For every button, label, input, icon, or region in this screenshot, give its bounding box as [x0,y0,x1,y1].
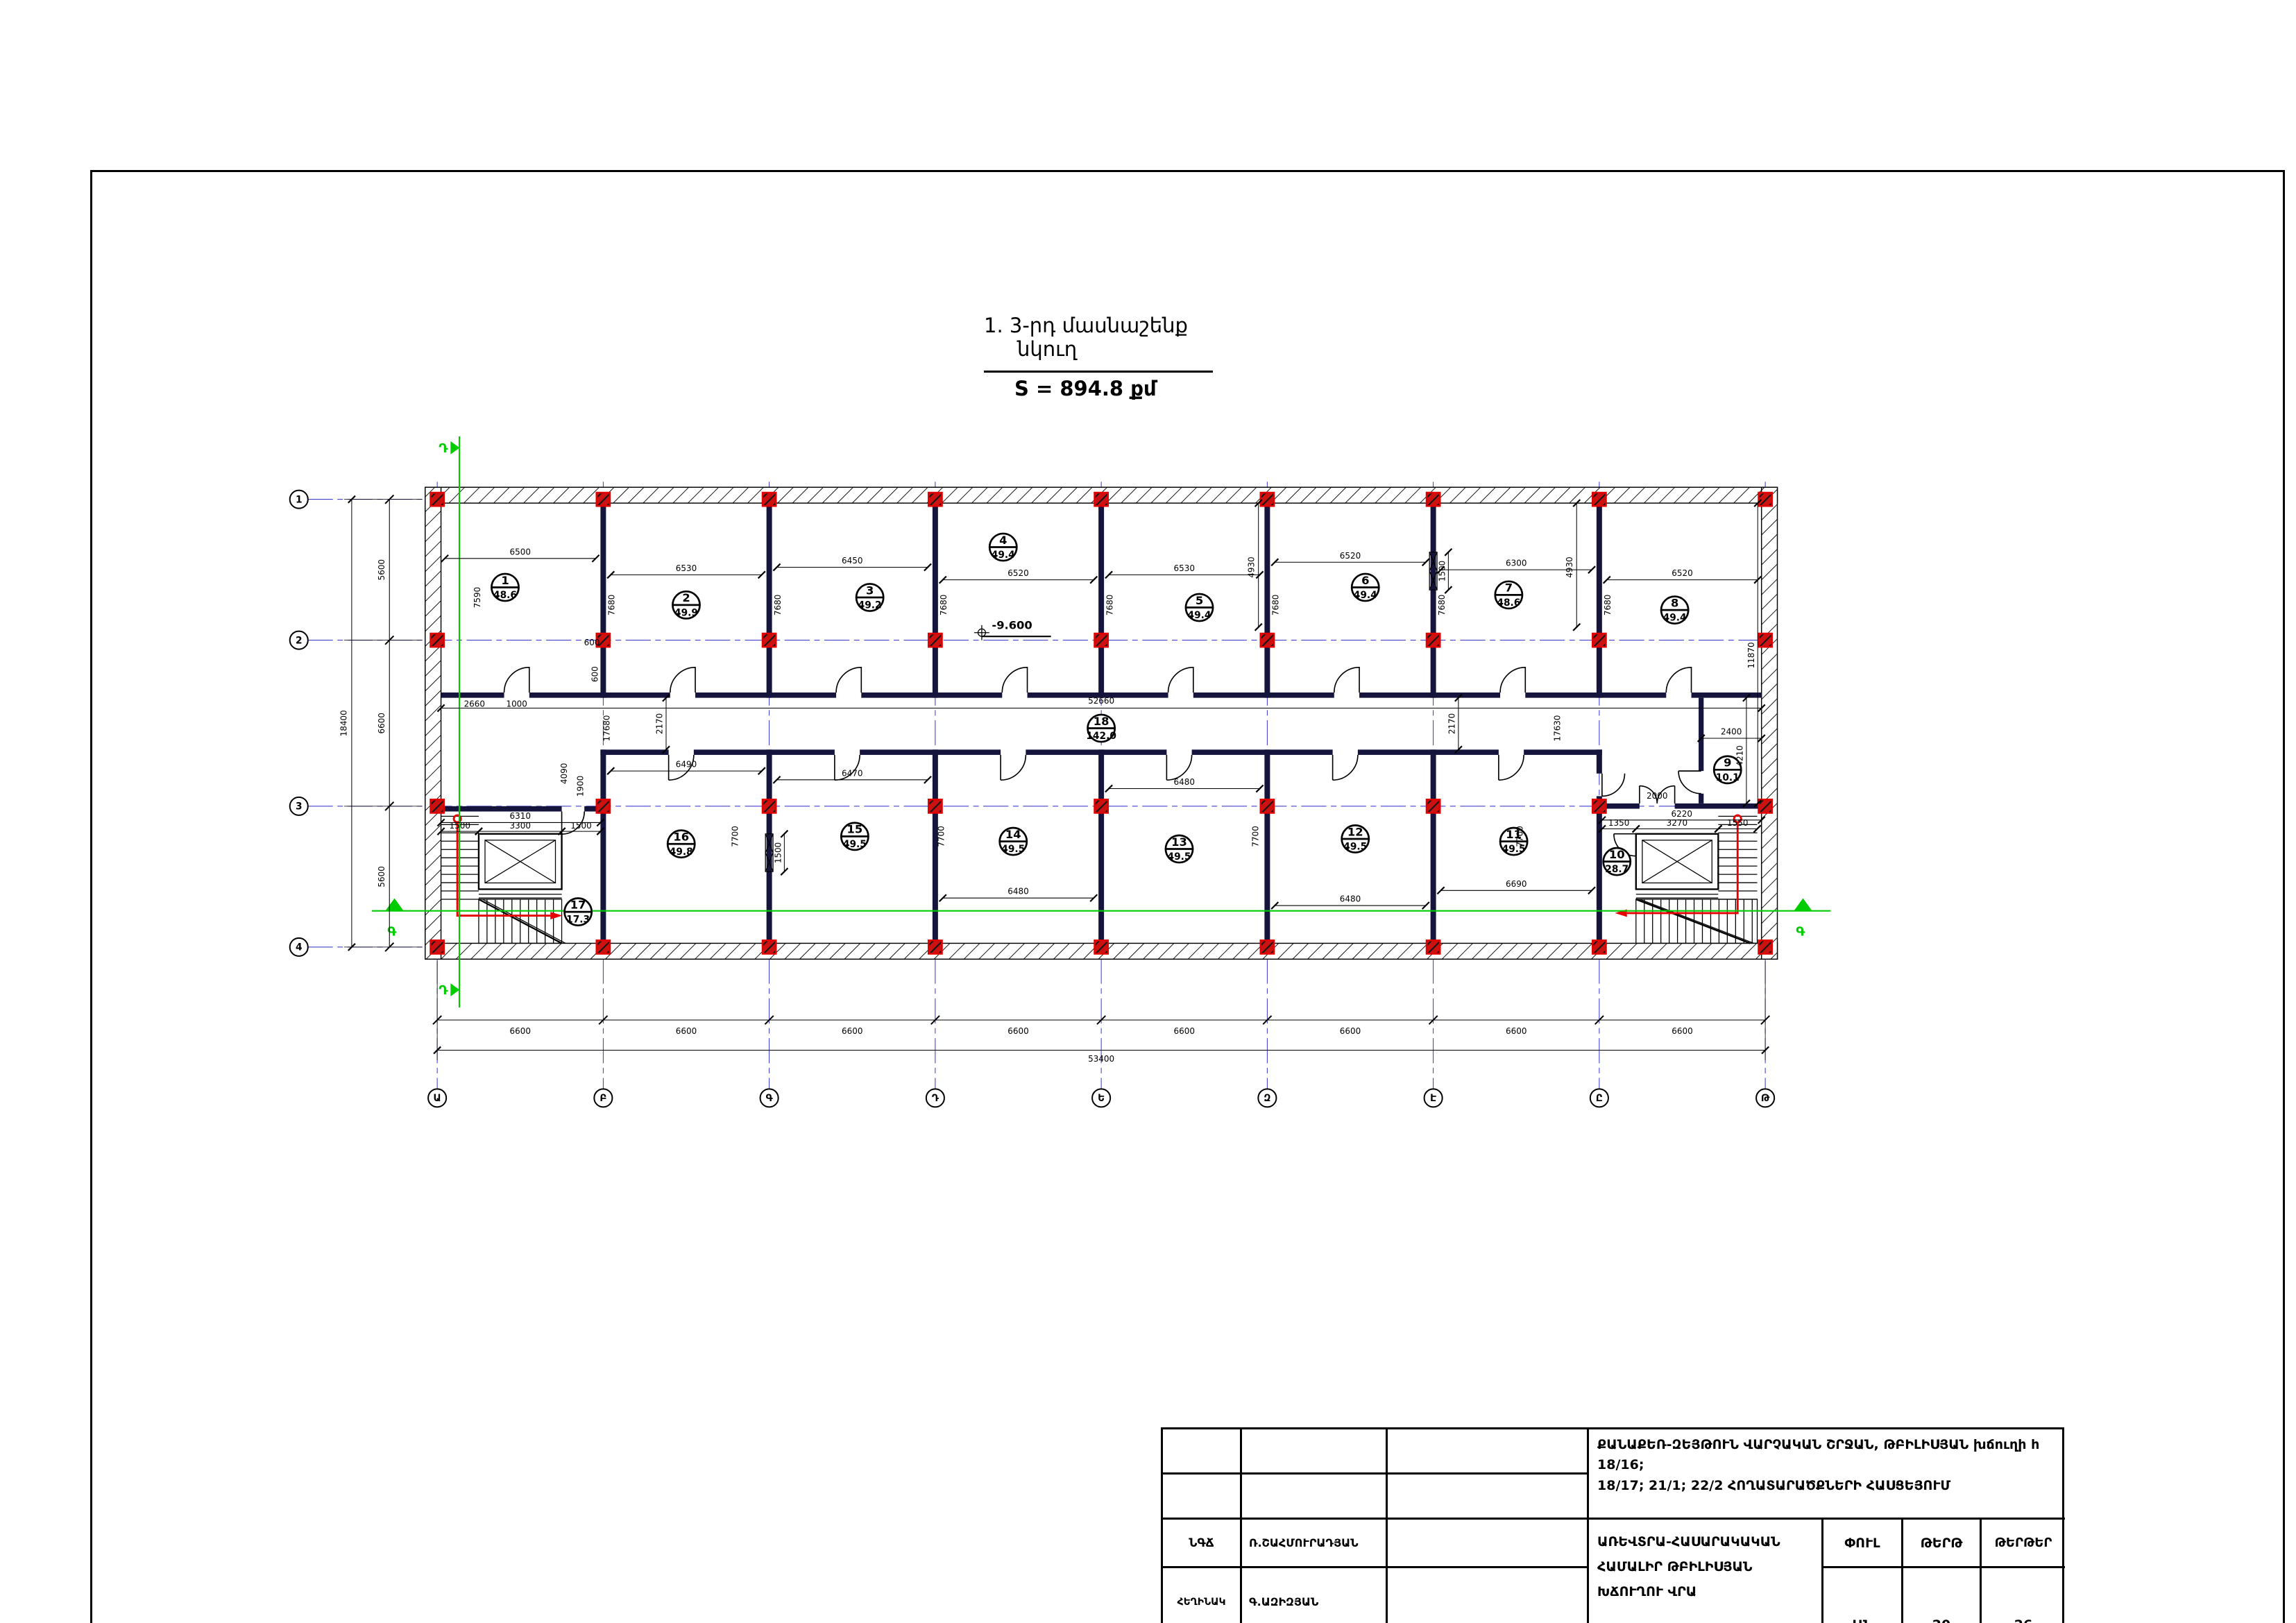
svg-text:Ա: Ա [434,1093,441,1104]
tb-empty-cell [1242,1475,1388,1520]
frame-left [90,170,92,1623]
svg-text:49.5: 49.5 [1168,851,1191,863]
svg-text:7680: 7680 [1603,595,1613,615]
svg-text:6600: 6600 [676,1026,697,1036]
tb-role-1: ՆԳՃ [1163,1520,1242,1568]
axis-bubble: Թ [1756,1089,1774,1107]
svg-text:Թ: Թ [1761,1093,1770,1104]
tb-empty-cell [1163,1475,1242,1520]
svg-text:7680: 7680 [1271,595,1281,615]
svg-text:18: 18 [1094,715,1109,728]
svg-text:6450: 6450 [842,556,862,566]
svg-text:49.5: 49.5 [1001,844,1025,855]
axis-bubble: Բ [594,1089,612,1107]
tb-name-2: Գ.ԱԶԻԶՅԱՆ [1242,1568,1388,1623]
svg-text:49.4: 49.4 [1188,610,1211,621]
tb-empty-cell [1388,1475,1589,1520]
svg-text:7700: 7700 [1251,826,1261,847]
room-label-stair-right: 1028.7 [1604,848,1631,875]
tb-empty-cell [1388,1429,1589,1475]
svg-text:6480: 6480 [1174,777,1195,787]
svg-text:17.3: 17.3 [566,915,590,926]
tb-empty-cell [1388,1520,1589,1568]
svg-text:1: 1 [501,574,509,587]
tb-value-stage: ԱՆ [1823,1568,1903,1623]
svg-text:49.5: 49.5 [1343,842,1367,853]
svg-text:2170: 2170 [655,713,665,734]
svg-text:3: 3 [296,801,303,813]
frame-top [90,170,2285,172]
svg-text:1350: 1350 [1608,818,1629,828]
svg-text:6470: 6470 [842,768,862,778]
svg-text:Զ: Զ [1264,1093,1270,1104]
svg-text:49.4: 49.4 [1354,590,1377,601]
top-room-doors [504,668,1692,692]
axis-bubble: 3 [290,797,308,815]
svg-text:-9.600: -9.600 [992,618,1032,631]
svg-text:600: 600 [590,666,599,682]
svg-text:14: 14 [1005,828,1021,841]
frame-right [2283,170,2285,1623]
svg-text:7700: 7700 [937,826,946,847]
axis-bubble: Զ [1258,1089,1276,1107]
svg-text:48.6: 48.6 [1497,597,1520,609]
title-line-1: 1. 3-րդ մասնաշենք [984,314,1220,337]
svg-text:4: 4 [296,942,303,953]
tb-empty-cell [1163,1429,1242,1475]
svg-text:3300: 3300 [510,821,531,831]
svg-text:1000: 1000 [506,699,527,709]
section-letter-d-bottom: Դ [439,983,448,998]
room-label: 649.4 [1352,574,1379,601]
svg-text:Ե: Ե [1098,1093,1105,1104]
tb-name-1: Ռ.ՇԱՀՄՈՒՐԱԴՅԱՆ [1242,1520,1388,1568]
svg-text:6480: 6480 [1007,887,1028,897]
axis-bubble: Դ [926,1089,944,1107]
tb-header-sheet: ԹԵՐԹ [1903,1520,1982,1568]
svg-text:1900: 1900 [575,776,585,797]
tb-header-sheets: ԹԵՐԹԵՐ [1982,1520,2065,1568]
svg-text:7680: 7680 [773,595,783,615]
svg-text:15: 15 [847,823,863,836]
svg-text:1550: 1550 [1727,818,1748,828]
room-label: 1549.5 [841,823,868,850]
svg-text:6600: 6600 [510,1026,531,1036]
tb-project-line-2: 18/17; 21/1; 22/2 ՀՈՂԱՏԱՐԱԾՔՆԵՐԻ ՀԱՍՑԵՅՈ… [1597,1476,2057,1496]
room-label: 1349.5 [1166,835,1193,863]
svg-text:7680: 7680 [1105,595,1114,615]
svg-text:17680: 17680 [602,715,611,741]
svg-text:3270: 3270 [1667,818,1687,828]
room-label-corridor: 18142.0 [1086,715,1116,742]
room-label: 249.9 [672,591,699,618]
axis-bubbles-left: 1 2 3 4 [290,491,308,956]
svg-text:6520: 6520 [1340,551,1361,561]
drawing-sheet: 1. 3-րդ մասնաշենք նկուղ S = 894.8 քմ [0,0,2296,1623]
svg-text:10: 10 [1609,848,1625,861]
section-letter-g-left: Գ [387,925,397,940]
svg-text:5600: 5600 [377,559,386,580]
title-line-2: նկուղ [1017,337,1220,361]
svg-text:6300: 6300 [1506,559,1527,568]
svg-text:5: 5 [1196,594,1203,607]
axis-bubble: Է [1425,1089,1443,1107]
svg-text:142.0: 142.0 [1086,731,1116,742]
svg-text:6520: 6520 [1672,568,1692,578]
svg-text:6530: 6530 [676,563,697,573]
svg-text:49.2: 49.2 [858,600,882,611]
svg-text:6500: 6500 [510,547,531,556]
title-block: ՆԳՃ Ռ.ՇԱՀՄՈՒՐԱԴՅԱՆ ՀԵՂԻՆԱԿ Գ.ԱԶԻԶՅԱՆ ՔԱՆ… [1161,1427,2064,1623]
axis-bubble: 1 [290,491,308,509]
svg-text:Դ: Դ [932,1093,939,1104]
svg-text:52660: 52660 [1088,696,1114,706]
escape-routes [454,815,1741,919]
axis-bubble: Ե [1092,1089,1110,1107]
partitions [600,503,1703,943]
tb-project-line-1: ՔԱՆԱՔԵՌ-ԶԵՅԹՈՒՆ ՎԱՐՉԱԿԱՆ ՇՐՋԱՆ, ԹԲԻԼԻՍՅԱ… [1597,1435,2057,1476]
svg-text:6600: 6600 [1007,1026,1028,1036]
room-label: 549.4 [1186,594,1213,621]
svg-text:1500: 1500 [450,821,470,831]
svg-text:13: 13 [1171,835,1187,849]
svg-text:11870: 11870 [1746,642,1756,668]
svg-text:1500: 1500 [1437,561,1447,581]
svg-text:4930: 4930 [1565,556,1574,577]
tb-project: ՔԱՆԱՔԵՌ-ԶԵՅԹՈՒՆ ՎԱՐՉԱԿԱՆ ՇՐՋԱՆ, ԹԲԻԼԻՍՅԱ… [1589,1429,2065,1520]
svg-text:6530: 6530 [1174,563,1195,573]
axis-bubble: Ա [428,1089,446,1107]
svg-text:1500: 1500 [773,842,783,863]
svg-text:7700: 7700 [1515,826,1524,847]
svg-text:600: 600 [584,638,600,647]
axis-bubble: Գ [760,1089,779,1107]
section-letter-d-top: Դ [439,441,448,456]
section-letter-g-right: Գ [1796,925,1805,940]
svg-text:7700: 7700 [730,826,740,847]
title-area: S = 894.8 քմ [1014,377,1220,400]
svg-text:2000: 2000 [1647,791,1667,801]
svg-text:17630: 17630 [1553,715,1563,741]
svg-text:7590: 7590 [473,587,482,608]
svg-text:2: 2 [682,591,690,604]
svg-text:48.6: 48.6 [493,590,517,601]
svg-text:49.8: 49.8 [670,847,693,858]
axis-bubble: Ը [1590,1089,1608,1107]
room-labels-bottom: 1649.8 1549.5 1449.5 1349.5 1249.5 1149.… [565,715,1742,926]
room-label: 349.2 [856,584,883,611]
svg-text:Բ: Բ [599,1093,606,1104]
tb-object: ԱՌԵՎՏՐԱ-ՀԱՍԱՐԱԿԱԿԱՆ ՀԱՄԱԼԻՐ ԹԲԻԼԻՍՅԱՆ ԽՃ… [1589,1520,1823,1623]
svg-text:7680: 7680 [607,595,617,615]
room-label: 849.4 [1661,596,1688,623]
drawing-title: 1. 3-րդ մասնաշենք նկուղ S = 894.8 քմ [984,314,1220,400]
grid-axes [307,482,1778,1089]
svg-text:6600: 6600 [1506,1026,1527,1036]
svg-text:49.5: 49.5 [843,839,867,850]
svg-text:Է: Է [1430,1093,1436,1104]
svg-text:4210: 4210 [1735,745,1744,766]
room-label: 449.4 [989,534,1017,561]
tb-empty-cell [1242,1429,1388,1475]
svg-text:2: 2 [296,635,303,646]
svg-text:1: 1 [296,494,303,505]
svg-text:2400: 2400 [1721,727,1742,737]
svg-text:6520: 6520 [1007,568,1028,578]
section-line-vertical: Դ Դ [439,436,459,1008]
svg-text:53400: 53400 [1088,1054,1114,1064]
svg-text:6600: 6600 [1340,1026,1361,1036]
level-mark: -9.600 [974,618,1051,640]
room-label: 1649.8 [667,831,695,858]
svg-text:4930: 4930 [1247,556,1257,577]
svg-text:6600: 6600 [842,1026,862,1036]
tb-role-2: ՀԵՂԻՆԱԿ [1163,1568,1242,1623]
svg-text:7680: 7680 [939,595,949,615]
svg-text:10.1: 10.1 [1716,772,1740,783]
title-underline [984,371,1213,373]
left-dimension-chain: 5600 6600 5600 18400 [339,495,423,951]
room-label: 748.6 [1495,581,1522,609]
svg-text:12: 12 [1347,825,1363,838]
tb-value-sheet: 20 [1903,1568,1982,1623]
svg-text:49.9: 49.9 [674,607,698,618]
room-label-stair-left: 1717.3 [565,898,592,925]
tb-header-stage: ՓՈՒԼ [1823,1520,1903,1568]
svg-text:6480: 6480 [1340,894,1361,904]
svg-text:Գ: Գ [766,1093,774,1104]
svg-text:5600: 5600 [377,866,386,887]
svg-text:6600: 6600 [1672,1026,1692,1036]
svg-text:17: 17 [570,898,586,911]
svg-text:8: 8 [1671,596,1678,609]
svg-text:18400: 18400 [339,710,349,736]
tb-value-sheets: 26 [1982,1568,2065,1623]
svg-text:4: 4 [999,534,1007,547]
svg-text:6600: 6600 [1174,1026,1195,1036]
svg-text:16: 16 [673,831,689,844]
svg-text:9: 9 [1724,756,1731,770]
svg-text:4090: 4090 [559,763,569,784]
axis-bubble: 2 [290,631,308,649]
svg-text:49.4: 49.4 [992,550,1015,561]
svg-text:6310: 6310 [510,811,531,821]
svg-text:1500: 1500 [570,821,591,831]
svg-text:6600: 6600 [377,713,386,733]
room-labels-top: 148.6 249.9 349.2 449.4 549.4 649.4 748.… [491,534,1688,624]
svg-text:2170: 2170 [1447,713,1456,734]
svg-text:6: 6 [1361,574,1369,587]
room-label: 1449.5 [1000,828,1027,855]
svg-text:28.7: 28.7 [1605,864,1629,875]
svg-text:6220: 6220 [1672,809,1692,819]
svg-text:2660: 2660 [464,699,485,709]
svg-text:7680: 7680 [1437,595,1447,615]
svg-text:49.4: 49.4 [1663,613,1687,624]
room-label: 148.6 [491,574,518,601]
room-label: 1249.5 [1342,825,1369,852]
svg-text:6490: 6490 [676,760,697,770]
svg-text:Ը: Ը [1596,1093,1603,1104]
svg-text:3: 3 [866,584,874,597]
tb-empty-cell [1388,1568,1589,1623]
svg-text:7: 7 [1505,581,1513,595]
axis-bubbles-bottom: Ա Բ Գ Դ Ե Զ Է Ը Թ [428,1089,1774,1107]
axis-bubble: 4 [290,938,308,956]
bottom-room-doors [669,755,1524,780]
svg-text:6690: 6690 [1506,879,1527,889]
floor-plan-svg: 1500 1500 Դ [264,416,1873,1180]
